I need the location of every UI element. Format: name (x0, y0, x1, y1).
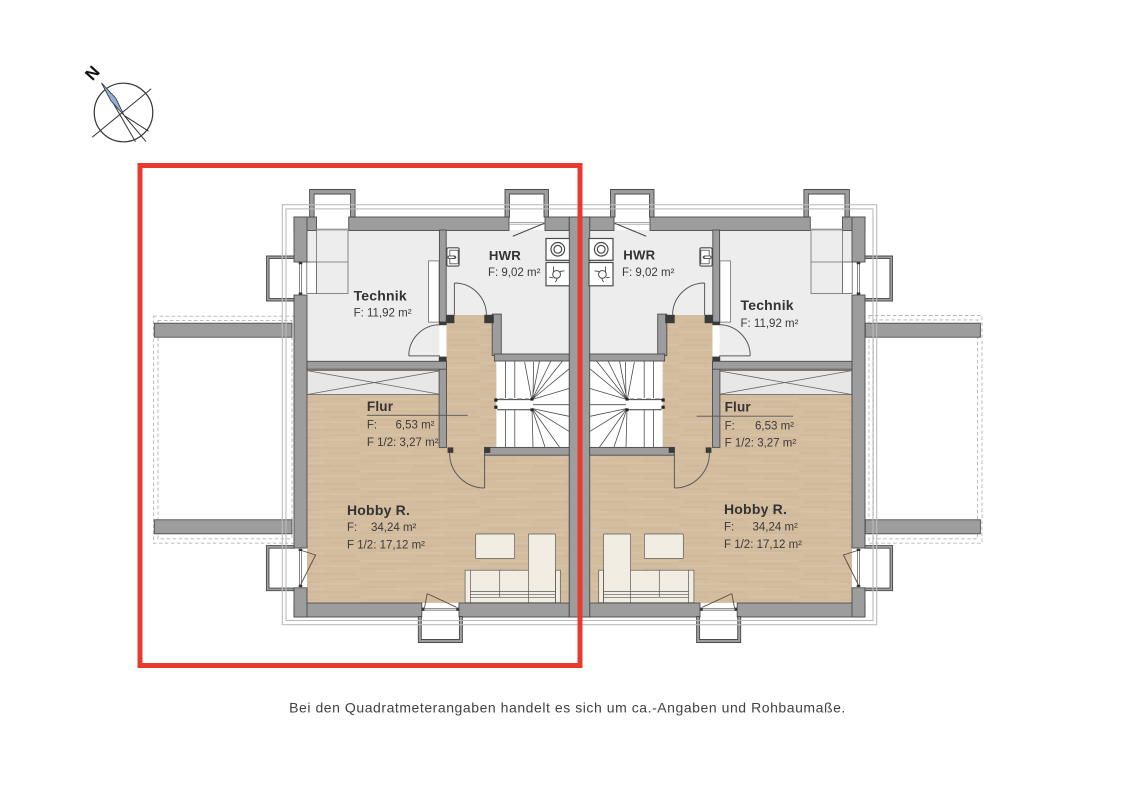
svg-text:34,24 m²: 34,24 m² (753, 522, 799, 534)
svg-text:6,53 m²: 6,53 m² (396, 420, 435, 432)
svg-text:N: N (81, 62, 103, 84)
svg-text:F 1/2: 17,12 m²: F 1/2: 17,12 m² (347, 540, 425, 552)
svg-text:F 1/2: 3,27 m²: F 1/2: 3,27 m² (367, 437, 439, 449)
svg-text:Technik: Technik (741, 297, 794, 313)
svg-text:HWR: HWR (623, 248, 655, 263)
svg-text:Bei den Quadratmeterangaben ha: Bei den Quadratmeterangaben handelt es s… (289, 700, 846, 716)
svg-text:F:: F: (347, 522, 357, 534)
svg-text:F:: F: (725, 421, 735, 433)
svg-text:Hobby R.: Hobby R. (724, 501, 787, 517)
svg-text:F:: F: (724, 522, 734, 534)
svg-text:F: 9,02 m²: F: 9,02 m² (488, 267, 541, 279)
svg-text:Flur: Flur (725, 400, 752, 415)
svg-text:F: 11,92 m²: F: 11,92 m² (741, 318, 799, 330)
svg-text:F:: F: (367, 420, 377, 432)
svg-text:F 1/2: 3,27 m²: F 1/2: 3,27 m² (725, 438, 797, 450)
svg-text:34,24 m²: 34,24 m² (371, 522, 417, 534)
svg-text:F: 11,92 m²: F: 11,92 m² (354, 308, 412, 320)
svg-text:6,53 m²: 6,53 m² (755, 421, 794, 433)
svg-text:F 1/2: 17,12 m²: F 1/2: 17,12 m² (724, 539, 802, 551)
svg-text:Technik: Technik (354, 288, 407, 304)
svg-text:F: 9,02 m²: F: 9,02 m² (622, 267, 675, 279)
svg-text:Hobby R.: Hobby R. (347, 502, 410, 518)
svg-text:Flur: Flur (367, 399, 394, 414)
svg-text:HWR: HWR (489, 248, 521, 263)
